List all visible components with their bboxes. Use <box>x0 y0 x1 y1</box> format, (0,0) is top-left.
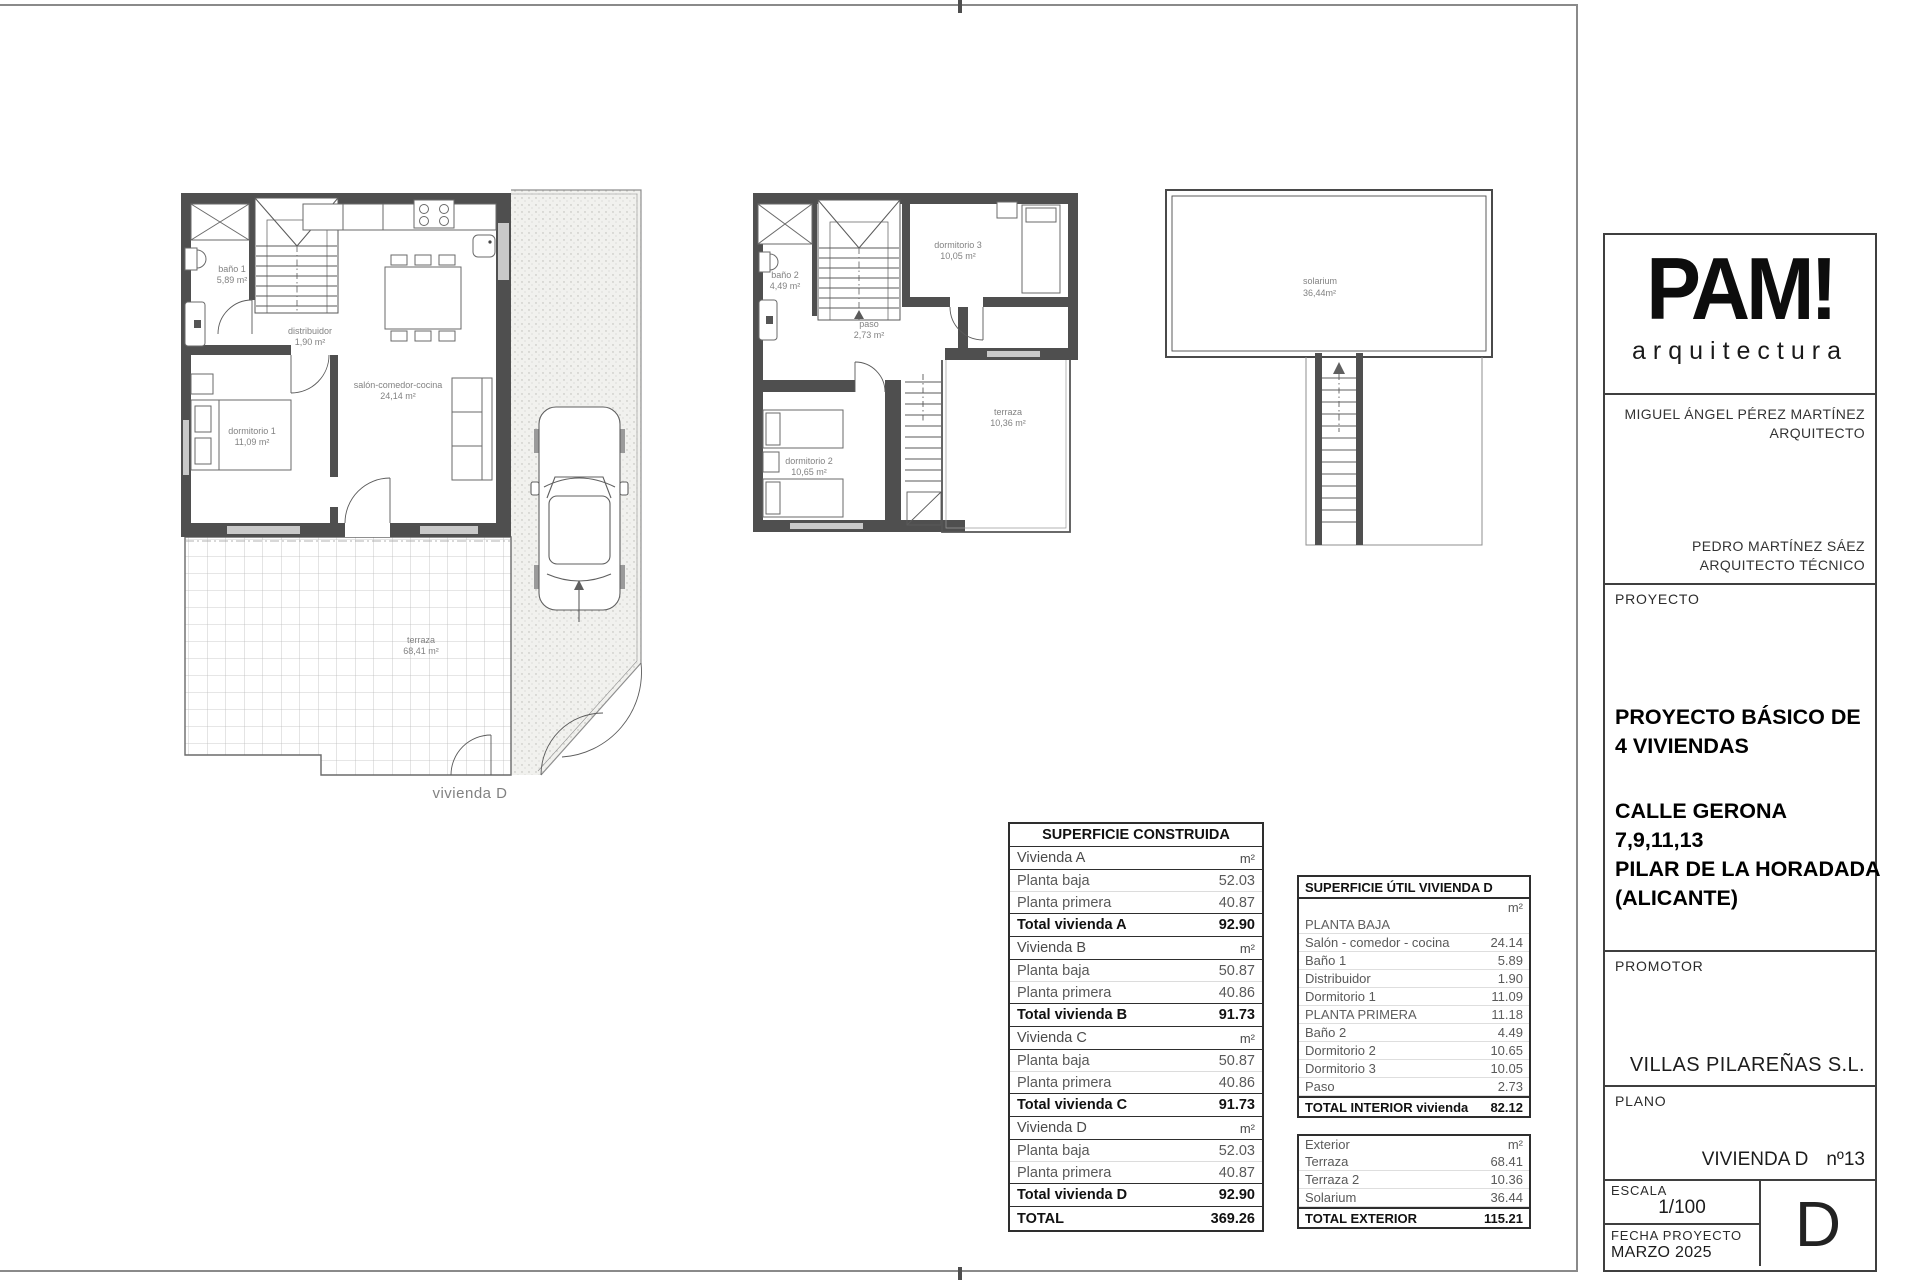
room-area: 10,05 m² <box>940 251 976 261</box>
title-block: PAM! arquitectura MIGUEL ÁNGEL PÉREZ MAR… <box>1603 233 1877 1272</box>
row-value: 52.03 <box>1219 873 1255 889</box>
dining-table <box>385 255 461 341</box>
row-label: Planta primera <box>1017 1075 1111 1091</box>
row-label: Distribuidor <box>1305 971 1371 986</box>
row-value: 5.89 <box>1498 953 1523 968</box>
room-label: distribuidor <box>288 326 332 336</box>
bed <box>997 202 1060 293</box>
table-row: PLANTA BAJA <box>1299 916 1529 934</box>
row-value: 4.49 <box>1498 1025 1523 1040</box>
room-label: baño 2 <box>771 270 799 280</box>
stairs <box>818 200 900 320</box>
row-label: TOTAL INTERIOR vivienda <box>1305 1100 1468 1115</box>
logo-brand: PAM! <box>1605 248 1875 332</box>
row-unit: m² <box>1240 851 1255 866</box>
row-label: Paso <box>1305 1079 1335 1094</box>
promotor-label: PROMOTOR <box>1615 958 1865 974</box>
row-label: Planta baja <box>1017 1053 1090 1069</box>
plan-first-floor: baño 2 4,49 m² paso 2,73 m² dormitorio 3… <box>745 182 1090 572</box>
terrace-parapet <box>942 360 1070 532</box>
titleblock-bottom: ESCALA 1/100 FECHA PROYECTO MARZO 2025 D <box>1605 1181 1875 1266</box>
row-value: 10.65 <box>1490 1043 1523 1058</box>
row-unit: m² <box>1508 1137 1523 1152</box>
table-row: Distribuidor1.90 <box>1299 970 1529 988</box>
row-label: Vivienda C <box>1017 1030 1087 1046</box>
row-label: Baño 2 <box>1305 1025 1346 1040</box>
table-row: Planta baja52.03 <box>1010 1140 1262 1162</box>
row-value: 52.03 <box>1219 1143 1255 1159</box>
fold-mark-bottom <box>958 1267 962 1280</box>
project-address-line: PILAR DE LA HORADADA <box>1615 855 1865 884</box>
plan-solarium: solarium 36,44m² <box>1160 182 1505 557</box>
row-unit: m² <box>1240 941 1255 956</box>
sheet-border-top <box>0 4 1578 6</box>
project-address-line: CALLE GERONA <box>1615 797 1865 826</box>
table-title: SUPERFICIE ÚTIL VIVIENDA D <box>1299 877 1529 899</box>
room-label: dormitorio 2 <box>785 456 833 466</box>
table-title-text: SUPERFICIE CONSTRUIDA <box>1042 827 1230 843</box>
escala-box: ESCALA 1/100 <box>1605 1181 1759 1225</box>
row-label: Exterior <box>1305 1137 1350 1152</box>
fold-mark-top <box>958 0 962 13</box>
table-row: Vivienda Cm² <box>1010 1027 1262 1050</box>
project-address-line: (ALICANTE) <box>1615 884 1865 913</box>
superficie-util-table: SUPERFICIE ÚTIL VIVIENDA D m² PLANTA BAJ… <box>1297 875 1531 1229</box>
room-label: terraza <box>407 635 435 645</box>
row-label: Salón - comedor - cocina <box>1305 935 1450 950</box>
row-value: 2.73 <box>1498 1079 1523 1094</box>
promotor-box: PROMOTOR VILLAS PILAREÑAS S.L. <box>1605 952 1875 1087</box>
row-value: 40.86 <box>1219 985 1255 1001</box>
table-row: Exteriorm² <box>1299 1136 1529 1153</box>
row-unit: m² <box>1240 1031 1255 1046</box>
row-label: Dormitorio 2 <box>1305 1043 1376 1058</box>
architect-role: ARQUITECTO TÉCNICO <box>1692 556 1865 575</box>
row-label: Planta baja <box>1017 963 1090 979</box>
row-label: Solarium <box>1305 1190 1356 1205</box>
plano-number: nº13 <box>1826 1149 1865 1170</box>
row-unit: m² <box>1240 1121 1255 1136</box>
row-label: Planta primera <box>1017 1165 1111 1181</box>
architect-name: MIGUEL ÁNGEL PÉREZ MARTÍNEZ <box>1615 405 1865 424</box>
bed <box>191 374 291 470</box>
row-value: 36.44 <box>1490 1190 1523 1205</box>
row-label: Dormitorio 1 <box>1305 989 1376 1004</box>
terrace-tiles <box>185 537 511 775</box>
interior-box: SUPERFICIE ÚTIL VIVIENDA D m² PLANTA BAJ… <box>1297 875 1531 1118</box>
table-row: Vivienda Am² <box>1010 847 1262 870</box>
room-area: 11,09 m² <box>235 437 270 447</box>
proyecto-box: PROYECTO PROYECTO BÁSICO DE 4 VIVIENDAS … <box>1605 585 1875 952</box>
superficie-construida-table: SUPERFICIE CONSTRUIDA Vivienda Am² Plant… <box>1008 822 1264 1232</box>
room-area: 68,41 m² <box>403 646 439 656</box>
drawing-sheet: baño 1 5,89 m² distribuidor 1,90 m² dorm… <box>0 0 1920 1280</box>
table-row: Vivienda Bm² <box>1010 937 1262 960</box>
table-row: Vivienda Dm² <box>1010 1117 1262 1140</box>
fecha-box: FECHA PROYECTO MARZO 2025 <box>1605 1225 1759 1265</box>
table-title: SUPERFICIE CONSTRUIDA <box>1010 824 1262 847</box>
row-value: 91.73 <box>1219 1007 1255 1023</box>
room-area: 4,49 m² <box>770 281 801 291</box>
row-value: 50.87 <box>1219 963 1255 979</box>
row-label: Vivienda A <box>1017 850 1085 866</box>
table-row: Planta primera40.87 <box>1010 1162 1262 1184</box>
row-label: PLANTA PRIMERA <box>1305 1007 1417 1022</box>
table-row: Terraza 210.36 <box>1299 1171 1529 1189</box>
row-label: Total vivienda C <box>1017 1097 1127 1113</box>
row-unit: m² <box>1508 900 1523 915</box>
row-label: Total vivienda B <box>1017 1007 1127 1023</box>
room-label: salón-comedor-cocina <box>354 380 443 390</box>
table-row: Paso2.73 <box>1299 1078 1529 1096</box>
table-row: Planta primera40.86 <box>1010 982 1262 1004</box>
row-label: Planta primera <box>1017 895 1111 911</box>
table-row: PLANTA PRIMERA11.18 <box>1299 1006 1529 1024</box>
row-value: 40.87 <box>1219 1165 1255 1181</box>
table-grand-total: TOTAL369.26 <box>1010 1207 1262 1230</box>
table-row: Salón - comedor - cocina24.14 <box>1299 934 1529 952</box>
promotor-value: VILLAS PILAREÑAS S.L. <box>1630 1054 1865 1077</box>
table-row: Planta baja50.87 <box>1010 1050 1262 1072</box>
architect-name: PEDRO MARTÍNEZ SÁEZ <box>1692 537 1865 556</box>
room-area: 5,89 m² <box>217 275 248 285</box>
row-label: Vivienda D <box>1017 1120 1087 1136</box>
table-row: Baño 24.49 <box>1299 1024 1529 1042</box>
sofa <box>452 378 492 480</box>
room-area: 2,73 m² <box>854 330 885 340</box>
table-title-text: SUPERFICIE ÚTIL VIVIENDA D <box>1305 880 1493 895</box>
row-value: 10.05 <box>1490 1061 1523 1076</box>
plan-caption: vivienda D <box>432 785 507 802</box>
row-label: Dormitorio 3 <box>1305 1061 1376 1076</box>
row-label: Vivienda B <box>1017 940 1086 956</box>
fecha-value: MARZO 2025 <box>1611 1244 1753 1262</box>
row-label: PLANTA BAJA <box>1305 917 1390 932</box>
row-value: 68.41 <box>1490 1154 1523 1169</box>
row-value: 369.26 <box>1211 1211 1255 1227</box>
table-row: TOTAL EXTERIOR115.21 <box>1299 1207 1529 1227</box>
row-label: Baño 1 <box>1305 953 1346 968</box>
sheet-border-right <box>1576 4 1578 1272</box>
row-label: Total vivienda A <box>1017 917 1127 933</box>
row-value: 50.87 <box>1219 1053 1255 1069</box>
row-value: 91.73 <box>1219 1097 1255 1113</box>
row-value: 82.12 <box>1490 1100 1523 1115</box>
sheet-border-bottom <box>0 1270 1578 1272</box>
table-row: Planta baja52.03 <box>1010 870 1262 892</box>
row-label: Terraza 2 <box>1305 1172 1359 1187</box>
room-area: 1,90 m² <box>295 337 326 347</box>
row-label: Planta primera <box>1017 985 1111 1001</box>
row-value: 115.21 <box>1484 1211 1523 1226</box>
room-area: 10,36 m² <box>990 418 1026 428</box>
car <box>531 407 628 622</box>
table-row: Total vivienda B91.73 <box>1010 1004 1262 1027</box>
project-title-line: PROYECTO BÁSICO DE <box>1615 703 1865 732</box>
row-value: 11.09 <box>1491 989 1523 1004</box>
table-row: Dormitorio 310.05 <box>1299 1060 1529 1078</box>
row-label: Planta baja <box>1017 873 1090 889</box>
table-row: Total vivienda C91.73 <box>1010 1094 1262 1117</box>
room-area: 36,44m² <box>1303 288 1336 298</box>
table-row: TOTAL INTERIOR vivienda82.12 <box>1299 1096 1529 1116</box>
stairs <box>1315 353 1363 545</box>
plano-box: PLANO VIVIENDA Dnº13 <box>1605 1087 1875 1181</box>
row-label: Total vivienda D <box>1017 1187 1127 1203</box>
escala-label: ESCALA <box>1611 1183 1753 1198</box>
architects-box: MIGUEL ÁNGEL PÉREZ MARTÍNEZ ARQUITECTO P… <box>1605 395 1875 585</box>
logo-subtitle: arquitectura <box>1605 337 1875 366</box>
fecha-label: FECHA PROYECTO <box>1611 1228 1753 1243</box>
row-value: 10.36 <box>1490 1172 1523 1187</box>
table-gap <box>1297 1118 1531 1134</box>
room-label: dormitorio 1 <box>228 426 276 436</box>
architect-role: ARQUITECTO <box>1615 424 1865 443</box>
row-label: Terraza <box>1305 1154 1348 1169</box>
table-row: Baño 15.89 <box>1299 952 1529 970</box>
table-row: Total vivienda D92.90 <box>1010 1184 1262 1207</box>
row-value: 11.18 <box>1491 1007 1523 1022</box>
table-row: Dormitorio 210.65 <box>1299 1042 1529 1060</box>
row-value: 92.90 <box>1219 1187 1255 1203</box>
table-row: Terraza68.41 <box>1299 1153 1529 1171</box>
table-row: Planta baja50.87 <box>1010 960 1262 982</box>
project-address-line: 7,9,11,13 <box>1615 826 1865 855</box>
room-label: paso <box>859 319 879 329</box>
row-value: 92.90 <box>1219 917 1255 933</box>
row-value: 24.14 <box>1490 935 1523 950</box>
table-row: Total vivienda A92.90 <box>1010 914 1262 937</box>
row-value: 40.86 <box>1219 1075 1255 1091</box>
table-row: Planta primera40.87 <box>1010 892 1262 914</box>
room-area: 24,14 m² <box>380 391 416 401</box>
table-row: Dormitorio 111.09 <box>1299 988 1529 1006</box>
room-label: terraza <box>994 407 1022 417</box>
walls <box>181 193 511 537</box>
logo: PAM! arquitectura <box>1605 235 1875 395</box>
table-row: m² <box>1299 899 1529 916</box>
escala-value: 1/100 <box>1611 1197 1753 1219</box>
row-label: TOTAL EXTERIOR <box>1305 1211 1417 1226</box>
room-label: solarium <box>1303 276 1337 286</box>
room-area: 10,65 m² <box>791 467 827 477</box>
plan-ground-floor: baño 1 5,89 m² distribuidor 1,90 m² dorm… <box>170 182 660 810</box>
row-label: Planta baja <box>1017 1143 1090 1159</box>
table-row: Solarium36.44 <box>1299 1189 1529 1207</box>
room-label: baño 1 <box>218 264 246 274</box>
row-value: 1.90 <box>1498 971 1523 986</box>
plano-label: PLANO <box>1615 1093 1865 1109</box>
table-row: Planta primera40.86 <box>1010 1072 1262 1094</box>
project-title-line: 4 VIVIENDAS <box>1615 732 1865 761</box>
sheet-letter: D <box>1761 1181 1875 1266</box>
row-value: 40.87 <box>1219 895 1255 911</box>
room-label: dormitorio 3 <box>934 240 982 250</box>
exterior-stairs <box>905 374 941 525</box>
exterior-box: Exteriorm² Terraza68.41 Terraza 210.36 S… <box>1297 1134 1531 1229</box>
proyecto-label: PROYECTO <box>1615 591 1865 607</box>
plano-value: VIVIENDA D <box>1702 1149 1809 1170</box>
row-label: TOTAL <box>1017 1211 1064 1227</box>
